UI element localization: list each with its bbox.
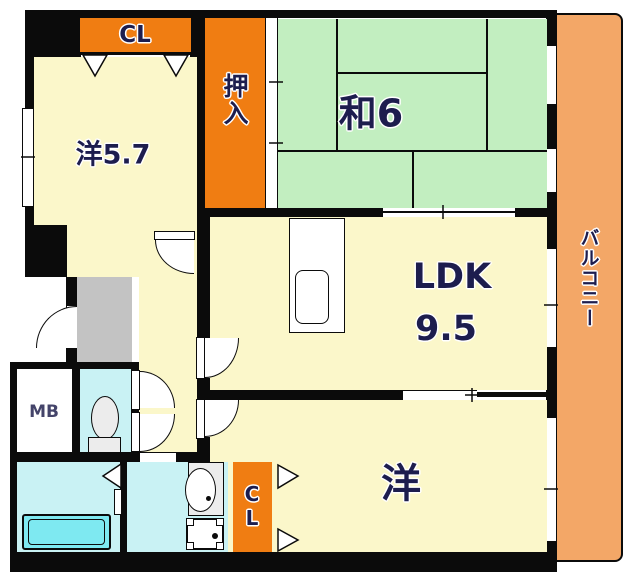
floor-plan: CL 押入 和6 洋5.7 LDK 9.5 洋 バルコニー MB CL <box>0 0 640 578</box>
door-symbols-overlay <box>0 0 640 578</box>
meter-box-label: MB <box>29 402 59 422</box>
balcony-label: バルコニー <box>576 228 603 328</box>
ldk-size-label: 9.5 <box>415 309 477 349</box>
western-bottom-label: 洋 <box>381 451 421 509</box>
closet-bottom-label: CL <box>240 482 264 530</box>
oshiire-label: 押入 <box>216 73 252 127</box>
folding-door-triangle <box>164 55 188 76</box>
folding-door-triangle <box>278 465 298 488</box>
western-5-7-label: 洋5.7 <box>76 133 151 172</box>
closet-top-label: CL <box>119 22 151 48</box>
washitsu-label: 和6 <box>339 83 403 138</box>
folding-door-triangle <box>103 464 121 488</box>
folding-door-triangle <box>83 55 107 76</box>
folding-door-triangle <box>278 529 298 551</box>
ldk-label: LDK <box>413 257 491 297</box>
